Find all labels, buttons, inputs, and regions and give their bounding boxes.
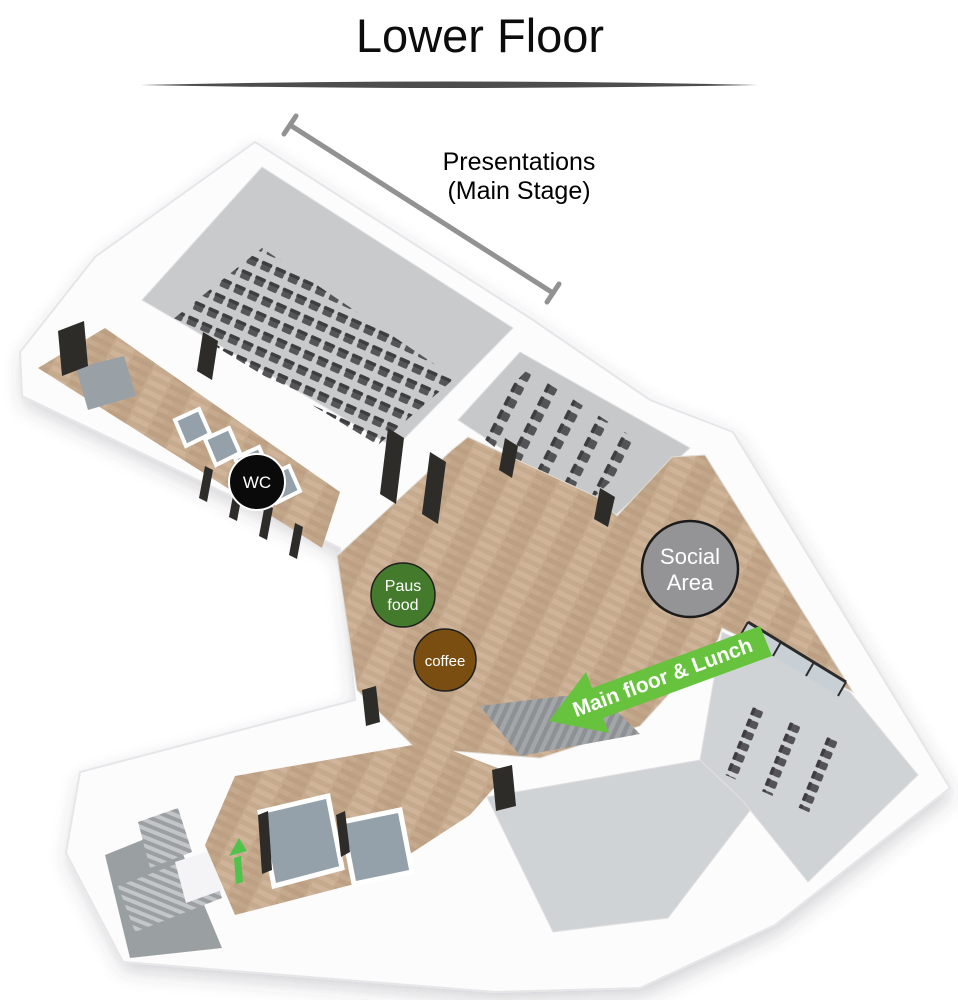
badge-social-area-line2: Area (667, 570, 714, 595)
badge-paus-food: Paus food (371, 563, 435, 627)
badge-social-area-line1: Social (660, 544, 720, 569)
badge-coffee: coffee (414, 629, 476, 691)
badge-paus-food-line2: food (387, 597, 418, 614)
badge-social-area: Social Area (642, 521, 738, 617)
meeting-room-2-floor (342, 810, 412, 884)
stage-annotation-line1: Presentations (443, 148, 596, 176)
meeting-room-1-floor (260, 796, 342, 886)
badge-paus-food-line1: Paus (385, 578, 421, 595)
title-divider (140, 82, 758, 89)
side-room-door (492, 765, 516, 811)
floor-plan-figure: Lower Floor Presentations (Main Stage) M… (0, 0, 958, 1000)
badge-coffee-label: coffee (425, 653, 466, 670)
floor-plan-page: Lower Floor Presentations (Main Stage) M… (0, 0, 958, 1000)
badge-wc-label: WC (243, 473, 271, 492)
stage-annotation: Presentations (Main Stage) (443, 148, 596, 205)
page-title: Lower Floor (356, 9, 604, 62)
stage-annotation-line2: (Main Stage) (447, 177, 590, 205)
badge-wc: WC (229, 454, 285, 510)
